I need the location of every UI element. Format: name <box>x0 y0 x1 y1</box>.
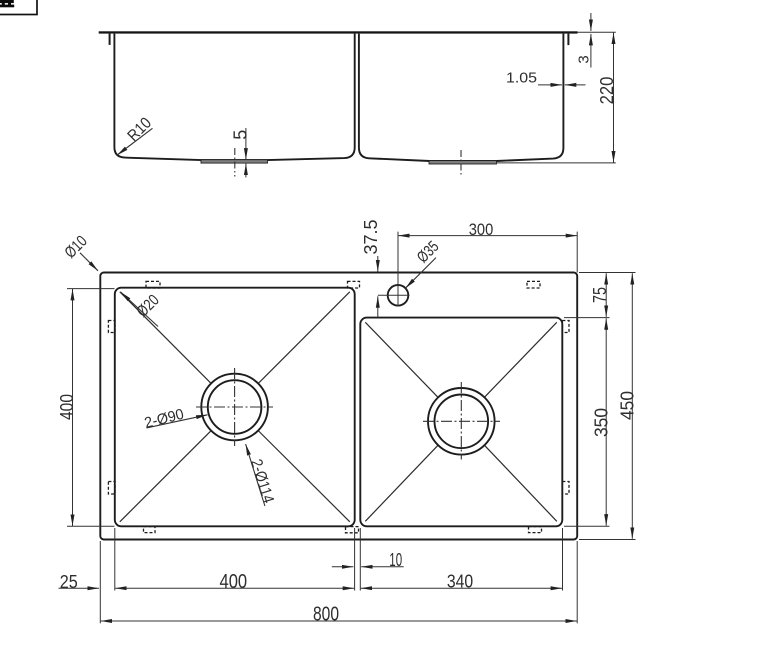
svg-text:220: 220 <box>597 77 617 105</box>
svg-text:2-Ø114: 2-Ø114 <box>247 457 276 505</box>
svg-text:75: 75 <box>590 287 610 303</box>
svg-text:450: 450 <box>618 391 638 420</box>
svg-text:350: 350 <box>592 408 612 437</box>
svg-text:5: 5 <box>231 130 251 140</box>
svg-text:400: 400 <box>57 394 77 420</box>
svg-text:800: 800 <box>313 604 339 626</box>
svg-text:340: 340 <box>447 572 473 592</box>
svg-text:1.05: 1.05 <box>506 70 537 87</box>
svg-text:300: 300 <box>469 220 494 239</box>
svg-text:2-Ø90: 2-Ø90 <box>143 406 186 432</box>
svg-text:25: 25 <box>60 572 78 592</box>
svg-text:R10: R10 <box>125 114 155 144</box>
svg-text:Ø35: Ø35 <box>414 238 442 266</box>
svg-text:Ø20: Ø20 <box>134 292 163 321</box>
svg-text:10: 10 <box>389 550 402 570</box>
svg-text:3: 3 <box>576 55 593 63</box>
svg-text:400: 400 <box>220 571 248 593</box>
svg-text:Ø10: Ø10 <box>62 233 91 262</box>
svg-text:37.5: 37.5 <box>361 220 381 255</box>
